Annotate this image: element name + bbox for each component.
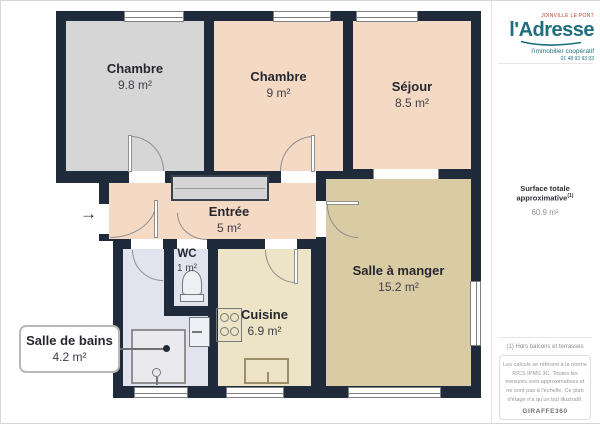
surface-value: 60.9 m² [494,208,596,217]
label-dining: Salle à manger 15.2 m² [326,263,471,295]
room-name: Séjour [353,79,471,96]
window-dining-right [470,281,481,346]
room-name: Chambre [214,69,343,86]
label-bathroom-callout: Salle de bains 4.2 m² [19,325,120,373]
room-area: 5 m² [139,221,319,237]
window-bathroom [134,387,188,398]
room-name: Cuisine [218,307,311,324]
room-area: 8.5 m² [353,96,471,112]
passage-living-dining [373,169,439,179]
callout-anchor-dot [163,345,170,352]
room-area: 1 m² [161,262,213,275]
entrance-arrow-icon: → [80,204,97,224]
room-name: WC [161,247,213,262]
label-bedroom-1: Chambre 9.8 m² [66,61,204,93]
surface-note-ref: (1) [567,193,573,199]
agency-logo: JOINVILLE LE PONT l'Adresse l'immobilier… [496,13,594,62]
window-bedroom-2 [273,11,331,22]
legal-box: Les calculs se réfèrent à la norme RICS … [499,355,591,420]
label-living: Séjour 8.5 m² [353,79,471,111]
door-opening-bedroom-2 [281,171,316,183]
door-opening-kitchen [265,239,297,249]
door-opening-bathroom [131,239,163,249]
label-wc: WC 1 m² [161,247,213,275]
callout-connector [116,348,166,350]
label-bedroom-2: Chambre 9 m² [214,69,343,101]
door-leaf-bedroom-1 [128,135,132,172]
floorplan-page: Chambre 9.8 m² Chambre 9 m² Séjour 8.5 m… [0,0,600,424]
room-area: 9.8 m² [66,78,204,94]
info-panel: JOINVILLE LE PONT l'Adresse l'immobilier… [491,1,600,423]
room-name: Salle de bains [26,333,113,349]
shower-drain-stem [156,377,158,385]
door-leaf-dining [326,201,359,205]
agency-brand: l'Adresse [496,20,594,40]
room-name: Entrée [139,204,319,221]
window-kitchen [226,387,284,398]
door-leaf-kitchen [294,249,298,284]
room-area: 15.2 m² [326,280,471,296]
room-area: 6.9 m² [218,324,311,340]
surface-summary: Surface totale approximative(1) 60.9 m² [494,184,596,217]
provider-name: GIRAFFE360 [503,408,587,415]
wardrobe [171,175,269,201]
toilet-tank-icon [180,294,204,302]
window-bedroom-1 [124,11,184,22]
room-area: 9 m² [214,86,343,102]
room-name: Salle à manger [326,263,471,280]
surface-footnote: (1) Hors balcons et terrasses [494,344,596,350]
washbasin-icon [189,317,210,347]
door-opening-bedroom-1 [129,171,165,183]
shower-drain-icon [152,368,161,377]
label-kitchen: Cuisine 6.9 m² [218,307,311,339]
label-entry: Entrée 5 m² [139,204,319,236]
room-name: Chambre [66,61,204,78]
agency-phone: 01 48 93 93 93 [496,56,594,62]
door-leaf-bedroom-2 [311,135,315,172]
panel-divider-top [498,63,592,64]
entrance-opening [99,204,109,234]
disclaimer-text: Les calculs se réfèrent à la norme RICS … [503,361,587,404]
window-living [356,11,418,22]
agency-tagline: l'immobilier coopératif [496,48,594,55]
surface-label: Surface totale approximative(1) [494,184,596,203]
window-dining-bottom [348,387,441,398]
floor-plan: Chambre 9.8 m² Chambre 9 m² Séjour 8.5 m… [1,1,491,425]
kitchen-sink-icon [244,358,289,384]
room-area: 4.2 m² [52,350,86,365]
logo-swoosh-icon [520,40,582,47]
panel-divider-bottom [498,337,592,338]
